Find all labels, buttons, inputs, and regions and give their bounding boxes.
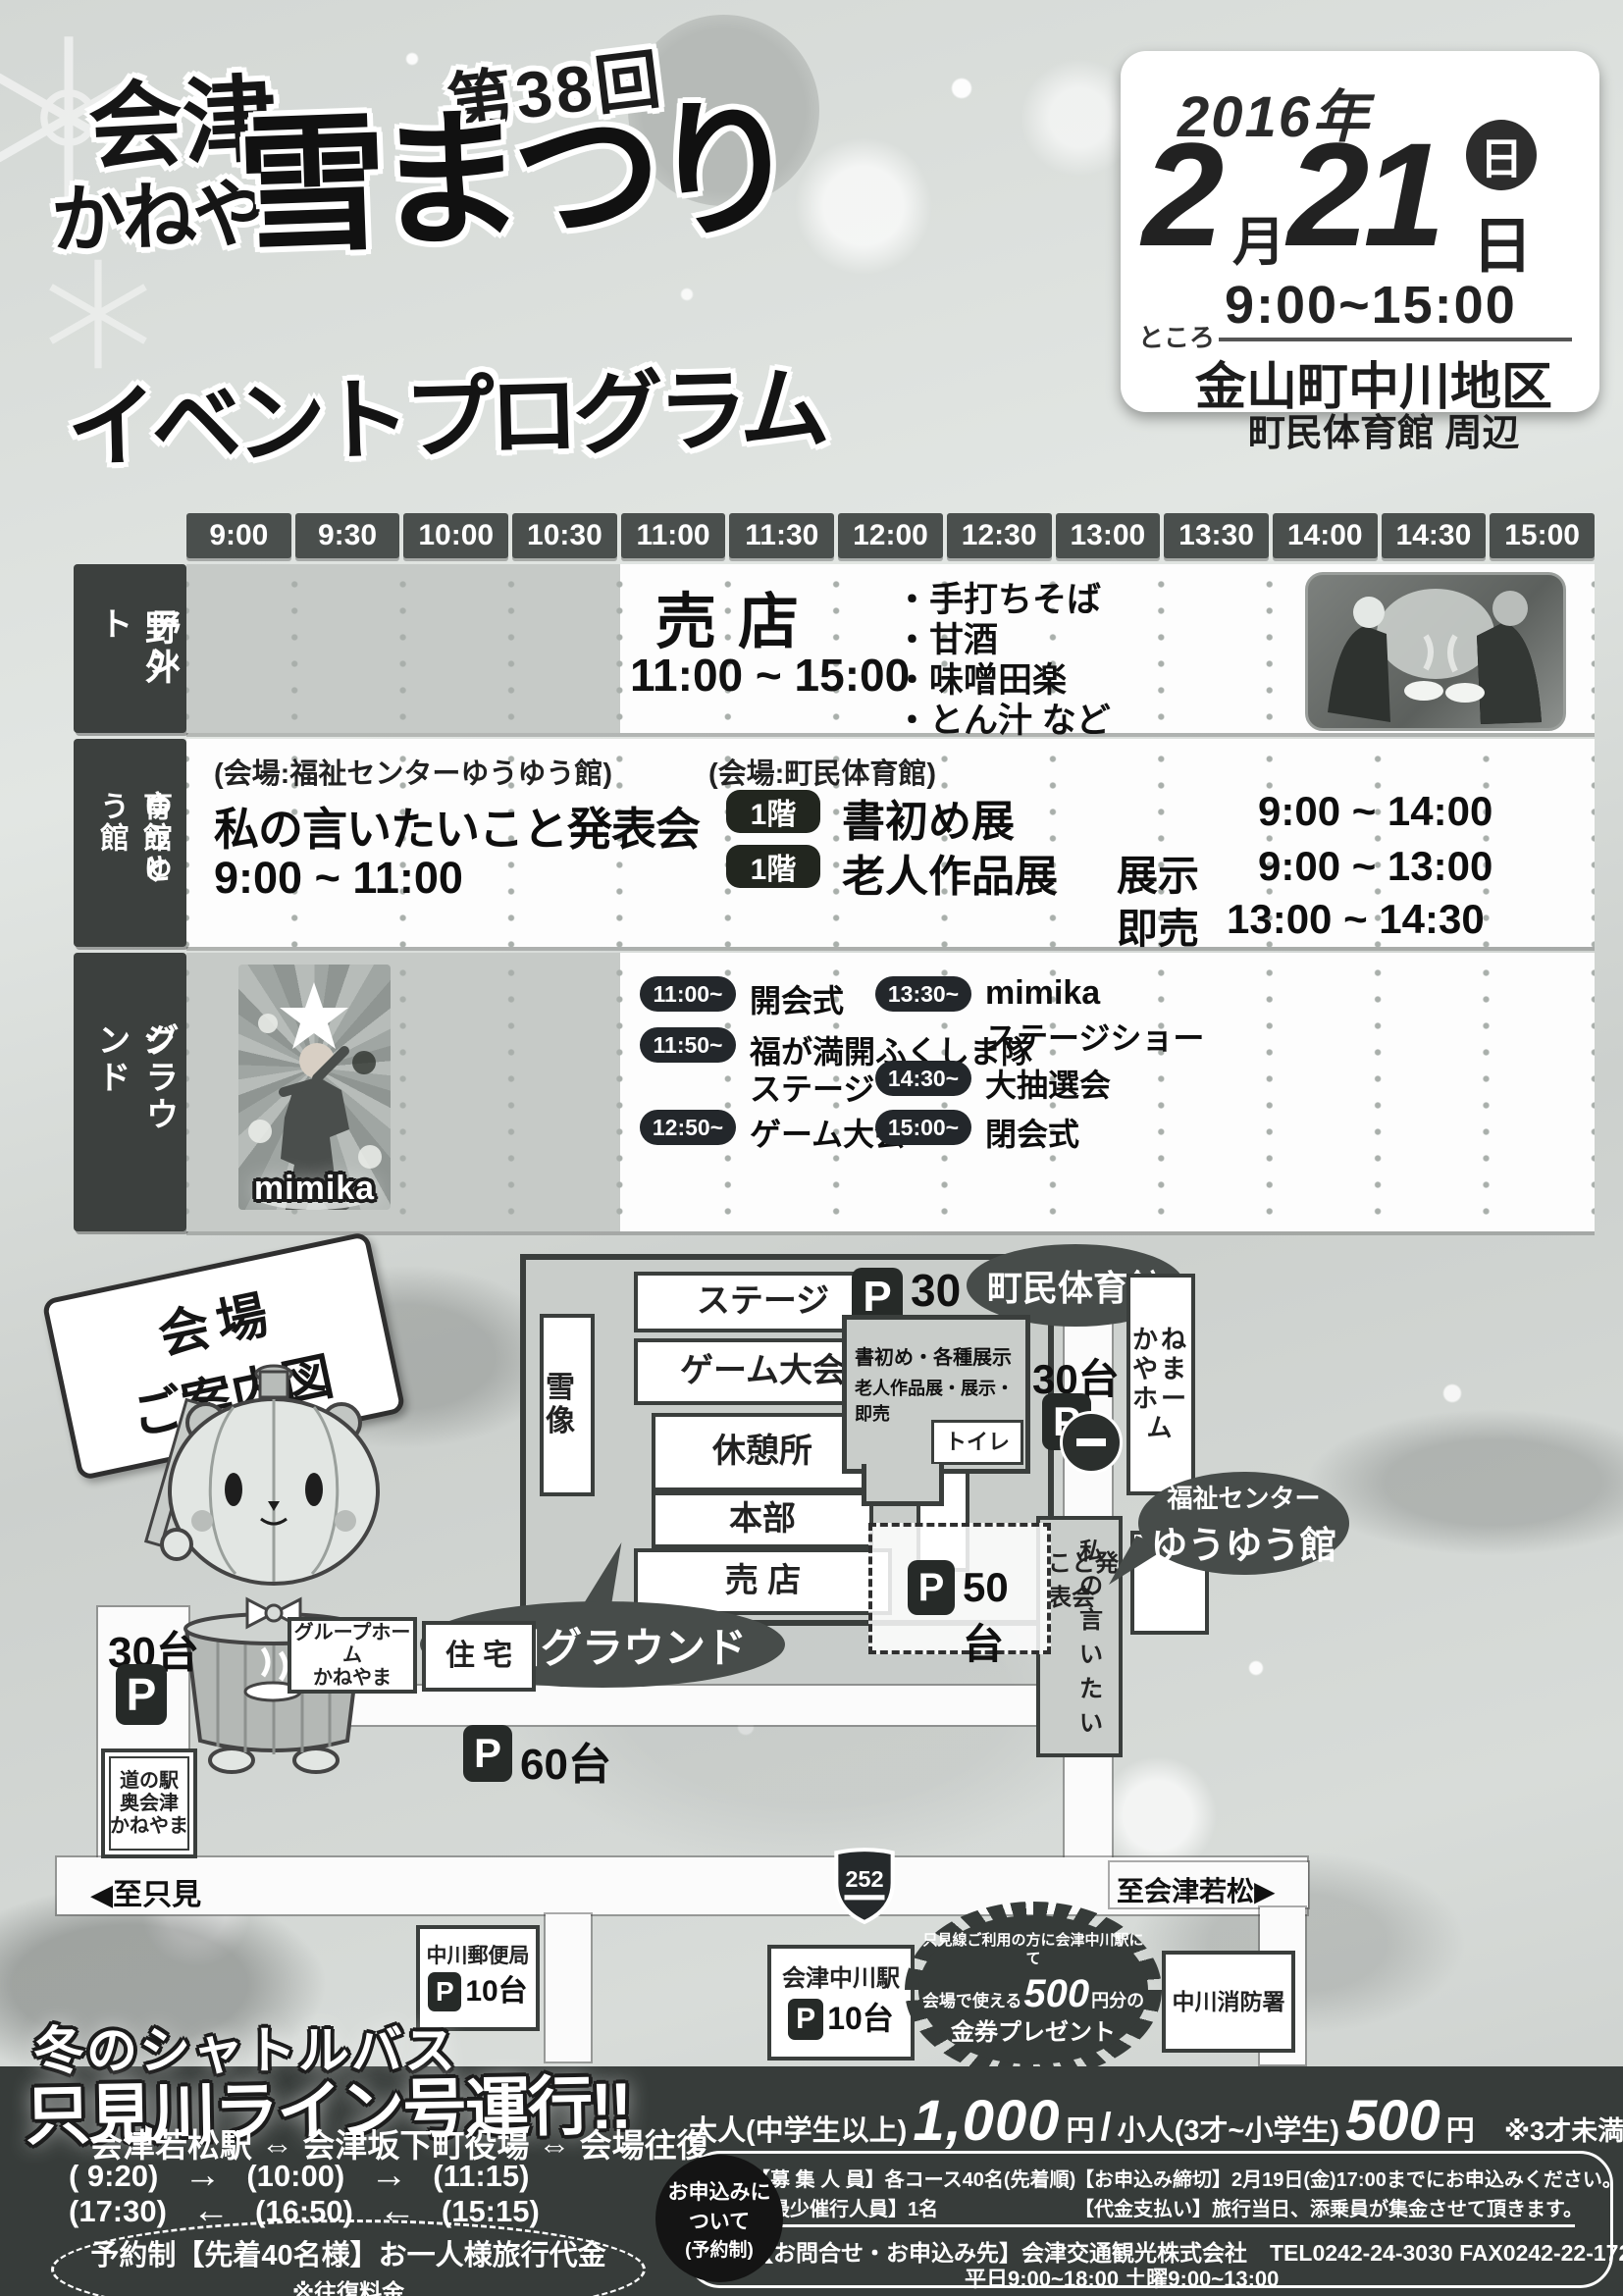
parking-icon: P: [428, 1972, 461, 2011]
date-underline: [1219, 338, 1572, 341]
event-sakuhinten-time: 9:00 ~ 13:00: [1258, 843, 1492, 890]
stage-event: ステージ: [750, 1065, 874, 1110]
ground-snow-statue: 雪像: [540, 1314, 595, 1496]
event-sakuhinten: 老人作品展: [842, 841, 1058, 904]
to-tadami-label: ◀至只見: [90, 1870, 201, 1913]
child-price: 500: [1345, 2088, 1440, 2154]
time-cell: 14:30: [1382, 513, 1487, 558]
title-yukimatsuri: 雪まつり: [234, 47, 790, 282]
label: かねやま: [110, 1815, 188, 1838]
event-happyokai: 私の言いたいこと発表会: [214, 794, 700, 859]
row-label-tent: 野外 テント: [74, 564, 186, 733]
route-number: 252: [845, 1866, 883, 1892]
event-kakizome-time: 9:00 ~ 14:00: [1258, 788, 1492, 835]
yen-label: 円: [1446, 2108, 1475, 2149]
to-wakamatsu-label: 至会津若松▶: [1117, 1870, 1276, 1909]
row-content-tent: 売店 11:00 ~ 15:00 ・手打ちそば ・甘酒 ・味噌田楽 ・とん汁 な…: [186, 564, 1595, 733]
info-hours: 平日9:00~18:00 土曜9:00~13:00: [965, 2262, 1279, 2293]
row-content-stage: mimika 11:00~ 開会式 11:50~ 福が満開ふくしま隊 ステージ …: [186, 953, 1595, 1231]
row-label-text: テント: [89, 606, 185, 691]
parking-50: P 50台: [868, 1523, 1051, 1654]
schedule-time-header: 9:00 9:30 10:00 10:30 11:00 11:30 12:00 …: [186, 513, 1595, 558]
row-label-stage: ステージ グラウンド: [74, 953, 186, 1231]
stage-event: ステージショー: [985, 1014, 1204, 1059]
stage-time-pill: 15:00~: [875, 1110, 971, 1145]
schedule-row-gym: 町民体育館と ゆうゆう館 (会場:福祉センターゆうゆう館) 私の言いたいこと発表…: [74, 739, 1595, 947]
schedule-row-stage: ステージ グラウンド: [74, 953, 1595, 1231]
adult-price: 1,000: [913, 2088, 1060, 2154]
station-box: 会津中川駅 P 10台: [767, 1945, 915, 2061]
row-label-text: グラウンド: [87, 1022, 183, 1162]
time-cell: 13:00: [1056, 513, 1161, 558]
date-month-num: 2: [1142, 110, 1224, 280]
fukushi-balloon: 福祉センター ゆうゆう館: [1138, 1472, 1349, 1575]
label: ゲーム大会: [680, 1352, 846, 1390]
row-content-gym: (会場:福祉センターゆうゆう館) 私の言いたいこと発表会 9:00 ~ 11:0…: [186, 739, 1595, 947]
group-home: グループホーム かねやま: [288, 1617, 417, 1694]
burst-line3: 金券プレゼント: [951, 2018, 1116, 2048]
gym-building: 書初め・各種展示 老人作品展・展示・即売 トイレ: [842, 1315, 1030, 1474]
floor-badge: 1階: [726, 790, 820, 833]
kaneyama-home: かねやまホーム: [1126, 1274, 1195, 1495]
label: ステージ: [697, 1282, 829, 1321]
time-cell: 9:00: [186, 513, 291, 558]
time-cell: 12:00: [838, 513, 943, 558]
label: かねやまホーム: [1130, 1326, 1191, 1443]
yen-label: 円: [1066, 2108, 1094, 2149]
label: かねやま: [313, 1667, 392, 1690]
time-cell: 14:00: [1273, 513, 1378, 558]
date-time: 9:00~15:00: [1225, 275, 1517, 336]
parking-count: 10台: [827, 2001, 894, 2037]
place-sub: 町民体育館 周辺: [1248, 402, 1520, 456]
label: 住 宅: [445, 1640, 512, 1674]
subtitle-event-program: イベントプログラム: [65, 336, 824, 486]
date-box: 2016年 2 月 21 日 日 ところ 9:00~15:00 金山町中川地区 …: [1121, 51, 1599, 412]
houses-box: 住 宅: [422, 1621, 536, 1692]
time-cell: 11:00: [621, 513, 726, 558]
label: 奥会津: [120, 1793, 179, 1815]
parking-count: 10台: [465, 1975, 527, 2009]
time-cell: 12:30: [947, 513, 1052, 558]
event-kakizome: 書初め展: [842, 786, 1015, 849]
tent-time: 11:00 ~ 15:00: [630, 649, 910, 702]
stage-event: 大抽選会: [985, 1061, 1111, 1106]
info-deadline: 【お申込み締切】2月19日(金)17:00までにお申込みください。: [1074, 2164, 1622, 2192]
food-stall-photo: [1305, 572, 1566, 731]
child-label: 小人(3才~小学生): [1118, 2108, 1339, 2149]
row-label-text: ゆうゆう館: [89, 791, 176, 895]
label: 中川郵便局: [427, 1945, 530, 1968]
badge-line1: お申込みに: [668, 2176, 771, 2206]
parking-icon: P: [116, 1664, 167, 1725]
stage-event: 閉会式: [985, 1110, 1079, 1155]
time-cell: 9:30: [295, 513, 400, 558]
event-sokubai-time: 13:00 ~ 14:30: [1227, 896, 1485, 943]
stage-time-pill: 11:50~: [640, 1027, 736, 1063]
burst-line2a: 会場で使える: [922, 1991, 1022, 2011]
burst-line2b: 500: [1023, 1969, 1089, 2018]
event-sokubai-phase: 即売: [1117, 896, 1199, 956]
schedule-table: 9:00 9:30 10:00 10:30 11:00 11:30 12:00 …: [74, 513, 1595, 1231]
reserve-note: ※往復料金: [292, 2273, 404, 2296]
road-closed-bar: [1076, 1438, 1106, 1446]
badge-line2: ついて: [689, 2206, 750, 2235]
gym-exhibit-line1: 書初め・各種展示: [855, 1341, 1012, 1370]
flyer-page: 第38回 会津 かねやま 雪まつり イベントプログラム 2016年 2 月 21…: [0, 0, 1623, 2296]
time-out-1: ( 9:20): [69, 2159, 158, 2194]
schedule-row-tent: 野外 テント 売店 11:00 ~ 15:00 ・手打ちそば ・甘酒 ・味噌田楽…: [74, 564, 1595, 733]
parking-icon: P: [908, 1560, 955, 1615]
label: こと発表会: [1048, 1543, 1119, 1612]
application-info-box: 【募 集 人 員】各コース40名(先着順) 【お申込み締切】2月19日(金)17…: [687, 2151, 1613, 2288]
info-payment: 【代金支払い】旅行当日、添乗員が集金させて頂きます。: [1074, 2193, 1583, 2221]
event-sakuhinten-phase: 展示: [1117, 843, 1199, 903]
label: 雪像: [544, 1372, 591, 1439]
adult-label: 大人(中学生以上): [689, 2108, 907, 2149]
stage-time-pill: 14:30~: [875, 1061, 971, 1096]
info-recruit: 【募 集 人 員】各コース40名(先着順): [751, 2164, 1075, 2192]
label: グループホーム: [291, 1622, 413, 1667]
burst-line2c: 円分の: [1091, 1990, 1144, 2012]
route-252-shield: 252: [832, 1845, 897, 1925]
event-happyokai-time: 9:00 ~ 11:00: [214, 853, 463, 904]
label: 休憩所: [712, 1433, 812, 1471]
date-day-unit: 日: [1472, 196, 1533, 285]
time-out-2: (10:00): [246, 2159, 344, 2194]
ground-rest-area: 休憩所: [652, 1413, 873, 1491]
floor-badge: 1階: [726, 845, 820, 888]
info-divider: [747, 2224, 1575, 2227]
road-closed-sign: [1060, 1411, 1123, 1474]
stage-time-pill: 12:50~: [640, 1110, 736, 1145]
time-cell: 10:30: [512, 513, 617, 558]
label: 福祉センター: [1167, 1479, 1320, 1515]
label: 道の駅: [120, 1770, 179, 1793]
tent-item: ・とん汁 など: [895, 693, 1111, 743]
application-badge: お申込みに ついて (予約制): [655, 2155, 783, 2282]
stage-event: 開会式: [750, 976, 844, 1021]
date-day-line: 2 月 21 日 日: [1142, 128, 1584, 275]
badge-line3: (予約制): [685, 2235, 754, 2262]
date-month-unit: 月: [1232, 198, 1285, 276]
stage-time-pill: 11:00~: [640, 976, 736, 1012]
label: トイレ: [945, 1430, 1010, 1454]
reserve-text: 予約制【先着40名様】お一人様旅行代金: [90, 2232, 605, 2273]
ground-hq: 本部: [652, 1491, 873, 1548]
time-back-1: (17:30): [69, 2194, 167, 2229]
gym-toilet: トイレ: [931, 1420, 1023, 1465]
label: 中川消防署: [1173, 1989, 1285, 2014]
road-station-down: [546, 1914, 591, 2061]
time-cell: 10:00: [403, 513, 508, 558]
parking-count: 50台: [963, 1564, 1047, 1671]
venue-yuyukan: (会場:福祉センターゆうゆう館): [214, 751, 612, 792]
burst-line1: 只見線ご利用の方に会津中川駅にて: [918, 1932, 1148, 1969]
stage-time-pill: 13:30~: [875, 976, 971, 1012]
coupon-burst: 只見線ご利用の方に会津中川駅にて 会場で使える 500 円分の 金券プレゼント: [905, 1902, 1162, 2078]
time-cell: 15:00: [1490, 513, 1595, 558]
label: 会津中川駅: [782, 1965, 900, 1993]
michinoeki-box: 道の駅 奥会津 かねやま: [101, 1748, 197, 1858]
stage-event: mimika: [985, 974, 1100, 1013]
row-label-gym: 町民体育館と ゆうゆう館: [74, 739, 186, 947]
parking-icon: P: [463, 1725, 512, 1782]
coupon-burst-text: 只見線ご利用の方に会津中川駅にて 会場で使える 500 円分の 金券プレゼント: [918, 1915, 1148, 2064]
label: 売 店: [725, 1562, 801, 1600]
parking-count: 60台: [520, 1729, 611, 1792]
gym-building-annex: [862, 1464, 944, 1506]
free-note: ※3才未満は無料: [1504, 2110, 1623, 2148]
gym-exhibit-line2: 老人作品展・展示・即売: [855, 1375, 1025, 1426]
fire-station-box: 中川消防署: [1162, 1951, 1295, 2053]
time-cell: 11:30: [729, 513, 834, 558]
mimika-caption: mimika: [238, 1170, 391, 1208]
time-out-3: (11:15): [433, 2159, 529, 2194]
time-cell: 13:30: [1164, 513, 1269, 558]
label: ゆうゆう館: [1150, 1515, 1336, 1569]
tent-event: 売店: [655, 572, 820, 660]
date-day-num: 21: [1287, 110, 1440, 280]
parking-icon: P: [788, 1999, 823, 2040]
mimika-photo: mimika: [238, 965, 391, 1210]
price-line: 大人(中学生以上) 1,000 円 / 小人(3才~小学生) 500 円 ※3才…: [689, 2088, 1621, 2154]
date-weekday-circle: 日: [1466, 120, 1537, 190]
label: 本部: [729, 1500, 796, 1539]
slash: /: [1101, 2106, 1112, 2150]
